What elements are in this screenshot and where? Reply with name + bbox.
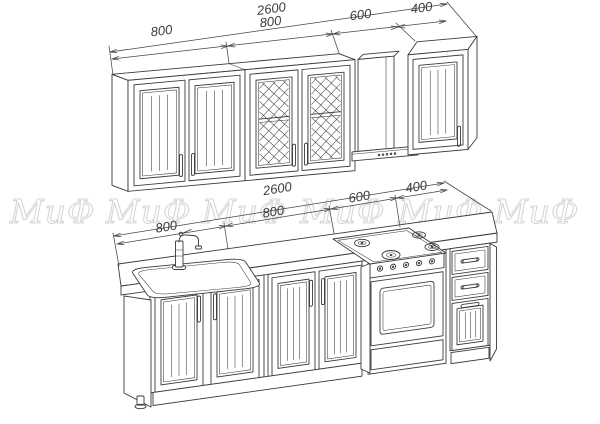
wall-cabinet-800-panel-doors [128,70,245,192]
drawing-canvas: МиФ МиФ МиФ МиФ МиФ МиФ 2600 800 800 [0,0,600,424]
dim-top-seg-600: 600 [349,6,373,24]
watermark-text: МиФ [493,192,579,231]
wall-cabinet-400 [408,36,477,154]
kitchen-technical-drawing: МиФ МиФ МиФ МиФ МиФ МиФ 2600 800 800 [0,0,600,424]
base-cabinet-800 [268,261,362,376]
dim-bottom-seg-800a: 800 [154,217,179,236]
dim-top-seg-400: 400 [410,0,434,16]
drawer-base-cabinet-400 [450,243,490,351]
watermark-text: МиФ [9,192,95,231]
dim-bottom-total: 2600 [261,179,294,199]
dim-top-seg-800a: 800 [150,22,174,40]
adjustable-foot [135,396,146,409]
wall-cabinets-row [112,36,477,192]
gas-stove [368,249,446,374]
watermark-text: МиФ [299,192,385,231]
watermark-text: МиФ [105,192,191,231]
dim-top-seg-800b: 800 [259,13,283,31]
